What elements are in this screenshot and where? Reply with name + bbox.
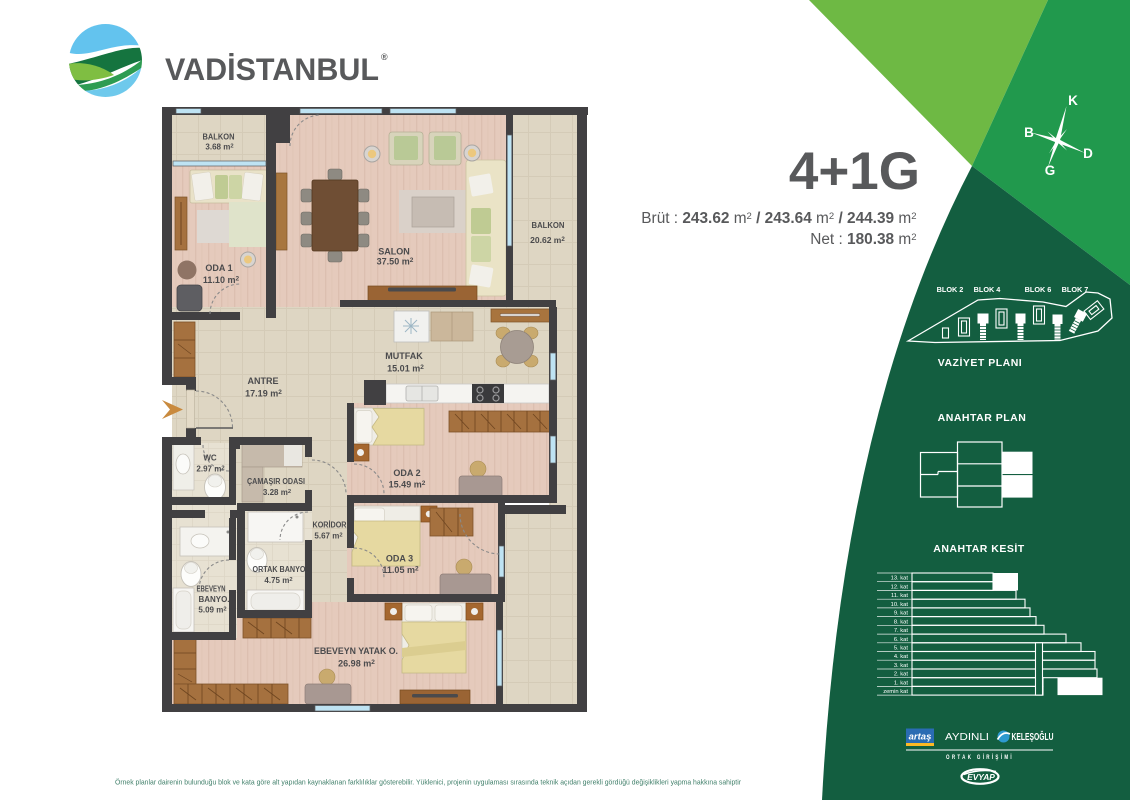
- svg-text:10. kat: 10. kat: [891, 602, 909, 608]
- svg-text:13. kat: 13. kat: [891, 576, 909, 582]
- svg-text:D: D: [1083, 146, 1093, 161]
- svg-text:8. kat: 8. kat: [894, 619, 909, 625]
- svg-text:ODA 3: ODA 3: [386, 554, 413, 564]
- svg-text:ÇAMAŞIR ODASI: ÇAMAŞIR ODASI: [247, 477, 305, 486]
- svg-text:4.75 m2: 4.75 m2: [264, 576, 292, 585]
- svg-text:Örnek planlar dairenin bulundu: Örnek planlar dairenin bulunduğu blok ve…: [115, 778, 741, 787]
- svg-text:EBEVEYN: EBEVEYN: [197, 585, 226, 594]
- svg-text:ANAHTAR PLAN: ANAHTAR PLAN: [938, 412, 1027, 424]
- svg-text:5.09 m2: 5.09 m2: [198, 606, 226, 615]
- svg-text:4+1G: 4+1G: [789, 142, 920, 201]
- svg-text:1. kat: 1. kat: [894, 680, 909, 686]
- svg-text:6. kat: 6. kat: [894, 637, 909, 643]
- svg-text:ODA 1: ODA 1: [205, 263, 232, 273]
- svg-text:B: B: [1024, 125, 1034, 140]
- svg-text:5. kat: 5. kat: [894, 646, 909, 652]
- svg-text:5.67 m2: 5.67 m2: [314, 532, 342, 541]
- svg-text:11.05 m2: 11.05 m2: [382, 565, 419, 575]
- svg-text:artaş: artaş: [909, 732, 932, 743]
- svg-text:®: ®: [381, 52, 388, 62]
- svg-text:SALON: SALON: [378, 247, 410, 257]
- svg-text:37.50 m2: 37.50 m2: [377, 257, 414, 267]
- svg-text:EVYAP: EVYAP: [967, 772, 995, 782]
- svg-text:BLOK 2: BLOK 2: [937, 285, 964, 294]
- svg-text:26.98 m2: 26.98 m2: [338, 659, 375, 669]
- svg-text:K: K: [1068, 93, 1078, 108]
- svg-text:ANTRE: ANTRE: [248, 376, 279, 386]
- svg-text:3.28 m2: 3.28 m2: [263, 488, 291, 497]
- svg-text:ORTAK BANYO: ORTAK BANYO: [253, 565, 306, 574]
- svg-text:G: G: [1045, 163, 1056, 178]
- svg-text:BLOK 4: BLOK 4: [974, 285, 1002, 294]
- svg-text:BALKON: BALKON: [532, 220, 565, 230]
- svg-text:Net : 180.38 m2: Net : 180.38 m2: [810, 231, 916, 248]
- svg-text:7. kat: 7. kat: [894, 628, 909, 634]
- svg-text:2. kat: 2. kat: [894, 672, 909, 678]
- svg-text:20.62 m2: 20.62 m2: [530, 235, 565, 245]
- svg-text:3. kat: 3. kat: [894, 663, 909, 669]
- svg-text:15.01 m2: 15.01 m2: [387, 364, 424, 374]
- svg-text:zemin kat: zemin kat: [883, 689, 908, 695]
- svg-text:ODA 2: ODA 2: [393, 468, 420, 478]
- svg-text:KORİDOR: KORİDOR: [313, 521, 347, 530]
- svg-text:2.97 m2: 2.97 m2: [196, 465, 224, 474]
- svg-text:ANAHTAR KESİT: ANAHTAR KESİT: [933, 542, 1025, 555]
- svg-text:3.68 m2: 3.68 m2: [205, 143, 233, 152]
- svg-text:Brüt : 243.62 m2 / 243.64 m2 /: Brüt : 243.62 m2 / 243.64 m2 / 244.39 m2: [641, 210, 916, 227]
- svg-text:MUTFAK: MUTFAK: [385, 351, 423, 361]
- svg-text:EBEVEYN YATAK O.: EBEVEYN YATAK O.: [314, 646, 398, 656]
- svg-text:17.19 m2: 17.19 m2: [245, 389, 282, 399]
- svg-text:WC: WC: [203, 454, 217, 463]
- svg-text:BALKON: BALKON: [203, 133, 235, 142]
- svg-text:9. kat: 9. kat: [894, 611, 909, 617]
- svg-text:VADİSTANBUL: VADİSTANBUL: [165, 51, 379, 87]
- svg-text:KELEŞOĞLU: KELEŞOĞLU: [1012, 731, 1054, 743]
- svg-text:11.10 m2: 11.10 m2: [203, 275, 240, 285]
- svg-text:ORTAK GİRİŞİMİ: ORTAK GİRİŞİMİ: [946, 754, 1014, 761]
- svg-text:15.49 m2: 15.49 m2: [389, 480, 426, 490]
- svg-text:VAZİYET PLANI: VAZİYET PLANI: [938, 356, 1022, 369]
- svg-text:BLOK 6: BLOK 6: [1025, 285, 1052, 294]
- svg-text:4. kat: 4. kat: [894, 654, 909, 660]
- svg-text:12. kat: 12. kat: [891, 584, 909, 590]
- svg-text:11. kat: 11. kat: [891, 593, 908, 599]
- svg-text:AYDINLI: AYDINLI: [945, 732, 989, 743]
- svg-text:BANYO.: BANYO.: [199, 595, 230, 604]
